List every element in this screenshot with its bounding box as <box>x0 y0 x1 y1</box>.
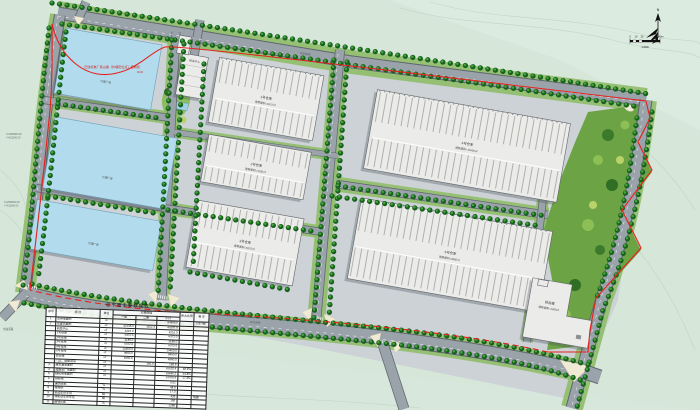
table-cell: 1286 <box>154 403 177 408</box>
table-cell <box>176 404 191 409</box>
coord-note: Y=513200.00 <box>6 137 21 140</box>
road-label-exit: 市政道路 <box>3 327 14 331</box>
building-guard <box>576 335 582 340</box>
road-label-bottom: 规划道路 <box>250 320 261 325</box>
red-control-note: 已建标准厂房山墙（外墙定位点）控制线 <box>84 64 140 69</box>
table-cell <box>132 402 153 407</box>
coord-note: Y=513180.00 <box>4 205 19 208</box>
table-body: 1总用地面积㎡84866.0128.3亩2总建筑面积㎡42145.61152.3… <box>43 317 209 410</box>
site-plan: 已建厂房 已建厂房 已建厂房 研发中心 <box>0 0 700 410</box>
table-cell: 11 <box>43 399 53 404</box>
building-gatehouse <box>538 279 549 287</box>
table-cell <box>191 405 206 410</box>
scale-ratio: 1:2000 <box>641 46 649 49</box>
red-control-elev: 45.00 <box>137 71 144 74</box>
table-cell: 围墙长度 <box>53 400 97 406</box>
svg-text:40m: 40m <box>659 36 664 39</box>
table-cell <box>110 402 133 407</box>
site-data-table: 总平面主要数据表 序号项 目单位主要数据所占比例备 注一期二期小计 1总用地面积… <box>42 300 210 410</box>
table-cell: m <box>97 401 110 406</box>
